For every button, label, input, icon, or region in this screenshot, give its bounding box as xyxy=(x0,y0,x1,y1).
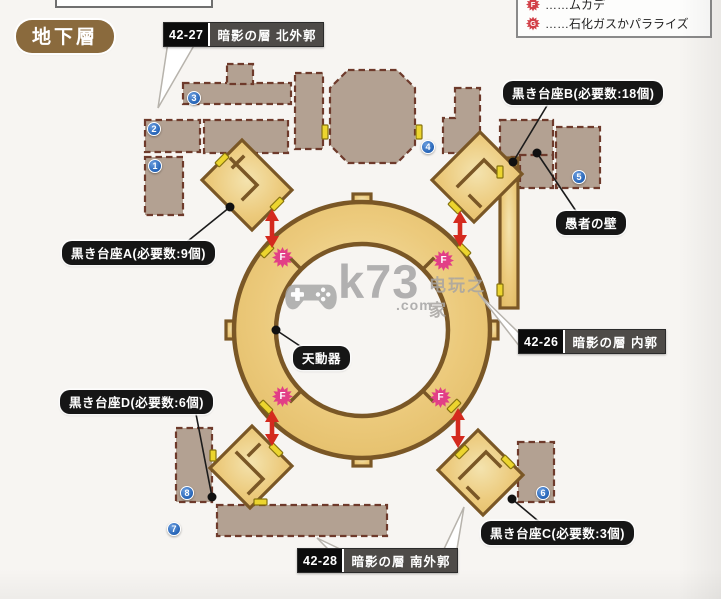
cropped-box-top-left xyxy=(55,0,213,8)
numbered-marker: 7 xyxy=(167,522,181,536)
legend-item-label: ……ムカデ xyxy=(545,0,605,13)
callout-tendoki: 天動器 xyxy=(293,346,350,370)
section-code: 42-27 xyxy=(164,23,208,46)
legend-item: G ……石化ガスかパラライズ xyxy=(526,15,689,32)
legend-item-label: ……石化ガスかパラライズ xyxy=(545,15,689,32)
numbered-marker: 6 xyxy=(536,486,550,500)
numbered-marker: 3 xyxy=(187,91,201,105)
legend-rows: F ……ムカデ G ……石化ガスかパラライズ xyxy=(526,0,689,32)
numbered-marker: 5 xyxy=(572,170,586,184)
floor-level-badge: 地下層 xyxy=(16,20,114,53)
callout-pedestal-d: 黒き台座D(必要数:6個) xyxy=(60,390,213,414)
enemy-burst-icon: G xyxy=(526,17,540,31)
enemy-burst-icon: F xyxy=(526,0,540,12)
enemy-legend: F ……ムカデ G ……石化ガスかパラライズ xyxy=(516,0,712,38)
legend-item: F ……ムカデ xyxy=(526,0,689,13)
callout-pedestal-c: 黒き台座C(必要数:3個) xyxy=(481,521,634,545)
section-name: 暗影の層 内郭 xyxy=(563,330,664,353)
section-code: 42-26 xyxy=(519,330,563,353)
section-name: 暗影の層 南外郭 xyxy=(342,549,457,572)
numbered-marker: 8 xyxy=(180,486,194,500)
numbered-marker: 1 xyxy=(148,159,162,173)
section-label-north: 42-27 暗影の層 北外郭 xyxy=(163,22,324,47)
callout-fools-wall: 愚者の壁 xyxy=(556,211,626,235)
section-label-south: 42-28 暗影の層 南外郭 xyxy=(297,548,458,573)
section-name: 暗影の層 北外郭 xyxy=(208,23,323,46)
guide-page: F ……ムカデ G ……石化ガスかパラライズ 地下層 42-27 暗影の層 北外… xyxy=(0,0,721,599)
callout-pedestal-a: 黒き台座A(必要数:9個) xyxy=(62,241,215,265)
section-label-inner: 42-26 暗影の層 内郭 xyxy=(518,329,666,354)
numbered-marker: 2 xyxy=(147,122,161,136)
numbered-marker: 4 xyxy=(421,140,435,154)
callout-pedestal-b: 黒き台座B(必要数:18個) xyxy=(503,81,663,105)
section-code: 42-28 xyxy=(298,549,342,572)
